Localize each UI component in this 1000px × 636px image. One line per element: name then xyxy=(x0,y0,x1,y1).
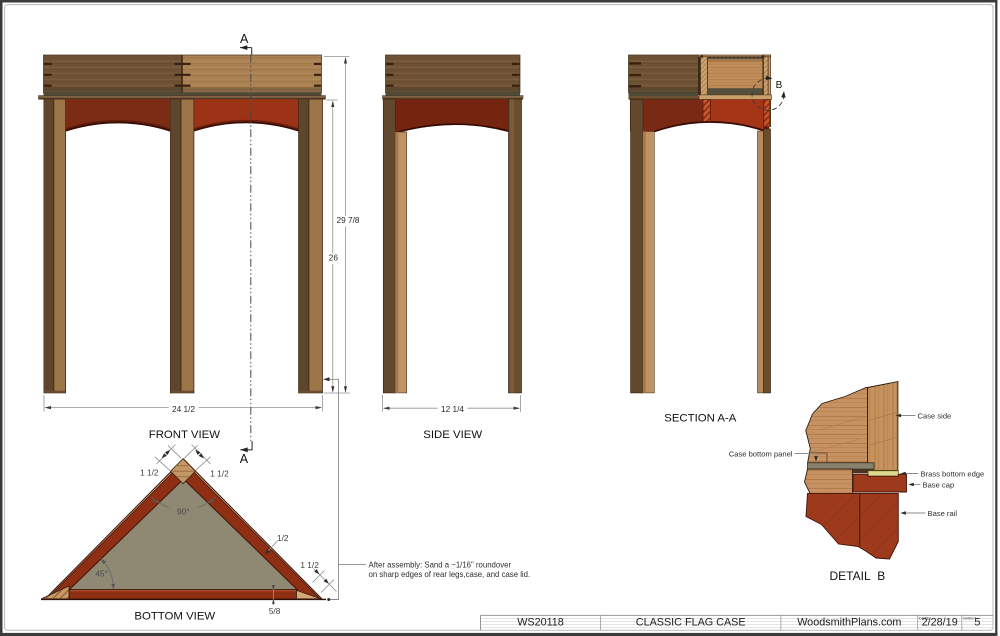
svg-text:A: A xyxy=(240,452,249,466)
svg-text:on sharp edges of rear legs,ca: on sharp edges of rear legs,case, and ca… xyxy=(369,570,531,579)
svg-text:1 1/2: 1 1/2 xyxy=(140,467,159,477)
svg-text:DATE: DATE xyxy=(919,616,930,621)
svg-text:24 1/2: 24 1/2 xyxy=(172,404,195,414)
svg-text:SIDE VIEW: SIDE VIEW xyxy=(423,429,482,441)
svg-text:B: B xyxy=(776,80,783,91)
svg-text:1/2: 1/2 xyxy=(277,533,289,543)
svg-text:A: A xyxy=(240,32,249,46)
svg-text:Base cap: Base cap xyxy=(923,481,955,490)
svg-text:WS20118: WS20118 xyxy=(517,617,564,629)
svg-text:CLASSIC FLAG CASE: CLASSIC FLAG CASE xyxy=(636,617,746,629)
svg-text:Case bottom panel: Case bottom panel xyxy=(729,450,793,459)
svg-text:WoodsmithPlans.com: WoodsmithPlans.com xyxy=(797,617,901,629)
svg-text:Case side: Case side xyxy=(918,412,952,421)
svg-text:FRONT VIEW: FRONT VIEW xyxy=(149,429,221,441)
svg-text:5/8: 5/8 xyxy=(269,606,281,616)
svg-text:BOTTOM VIEW: BOTTOM VIEW xyxy=(134,610,215,622)
svg-text:Base rail: Base rail xyxy=(928,509,958,518)
svg-text:1 1/2: 1 1/2 xyxy=(300,560,319,570)
svg-text:SECTION A-A: SECTION A-A xyxy=(664,412,737,424)
svg-text:Brass bottom edge: Brass bottom edge xyxy=(921,470,985,479)
svg-text:DETAIL B: DETAIL B xyxy=(830,569,886,583)
svg-text:45°: 45° xyxy=(95,568,108,578)
svg-text:SHEET: SHEET xyxy=(963,616,977,621)
svg-text:After assembly: Sand a ~1/16": After assembly: Sand a ~1/16" roundover xyxy=(369,561,512,570)
svg-text:12 1/4: 12 1/4 xyxy=(441,404,464,414)
svg-text:29 7/8: 29 7/8 xyxy=(336,215,359,225)
svg-text:26: 26 xyxy=(329,253,339,263)
svg-text:1 1/2: 1 1/2 xyxy=(210,468,229,478)
svg-text:90°: 90° xyxy=(177,506,190,516)
